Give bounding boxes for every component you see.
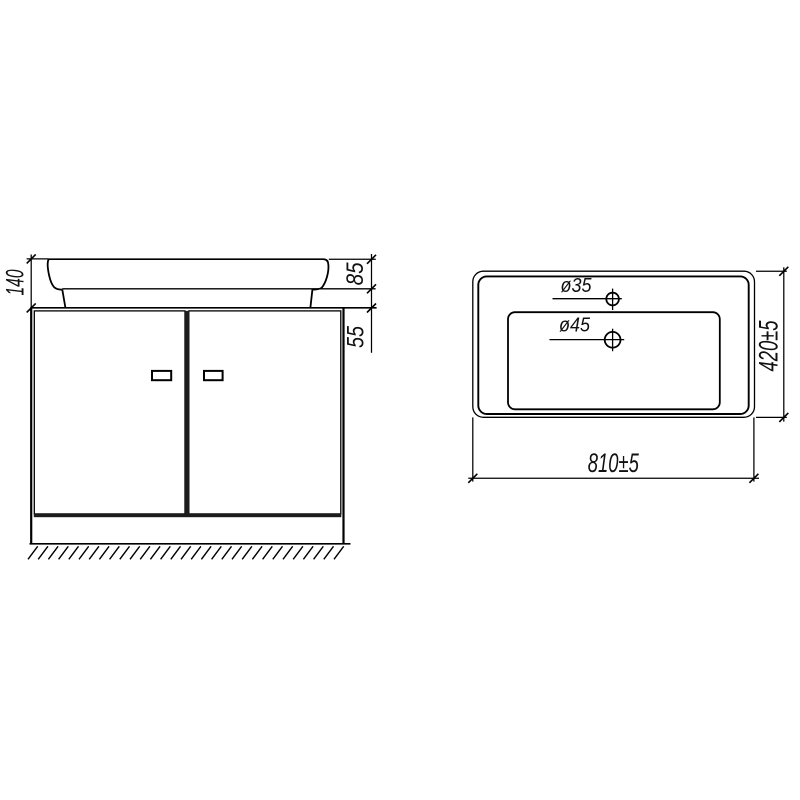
svg-text:85: 85 [342,262,369,286]
svg-text:420±5: 420±5 [754,320,784,372]
svg-text:55: 55 [342,325,369,348]
svg-text:ø35: ø35 [561,275,593,297]
svg-text:810±5: 810±5 [588,448,640,478]
svg-text:ø45: ø45 [559,315,591,337]
svg-text:140: 140 [2,269,30,295]
